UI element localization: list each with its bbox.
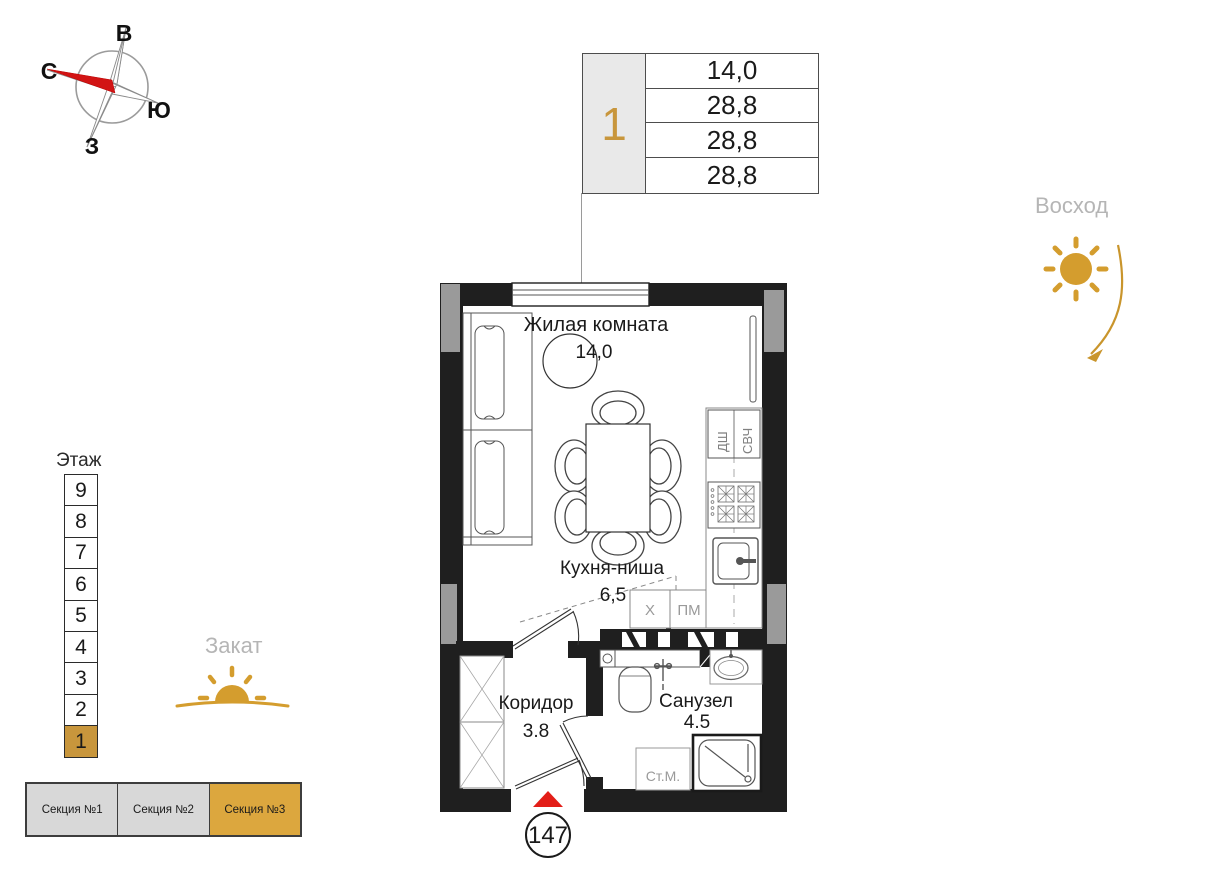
stove [708, 482, 760, 528]
floor-item-8[interactable]: 8 [64, 505, 98, 538]
living-room-area: 14,0 [576, 342, 613, 363]
info-row-total-area: 28,8 [646, 89, 818, 124]
dishwasher-label: ПМ [677, 602, 700, 619]
unit-number: 147 [528, 822, 568, 849]
oven-label: ДШ [715, 431, 730, 452]
shower-tray [693, 735, 761, 791]
unit-number-badge: 147 [526, 813, 570, 857]
floor-item-4[interactable]: 4 [64, 631, 98, 664]
floor-item-3[interactable]: 3 [64, 662, 98, 695]
kitchen-sink [713, 538, 758, 584]
info-row-living-area: 14,0 [646, 54, 818, 89]
info-rows: 14,0 28,8 28,8 28,8 [646, 54, 818, 193]
bed [463, 313, 532, 545]
sunrise-label: Восход [1035, 193, 1108, 219]
floors-label: Этаж [56, 450, 101, 472]
corridor-area: 3.8 [523, 721, 549, 742]
apartment-floor-plan: ДШ СВЧ Х ПМ [430, 275, 810, 875]
sunset-sun-icon [175, 655, 290, 710]
floor-item-9[interactable]: 9 [64, 474, 98, 507]
floor-item-1-active[interactable]: 1 [64, 725, 98, 758]
washer-label: Ст.М. [646, 768, 680, 784]
bathroom-vent [600, 650, 615, 667]
floor-selector: 9 8 7 6 5 4 3 2 1 [64, 474, 98, 758]
compass-label-north: С [41, 58, 58, 84]
apartment-info-table: 1 14,0 28,8 28,8 28,8 [582, 53, 819, 194]
bathroom-label: Санузел [659, 691, 733, 712]
kitchen-label: Кухня-ниша [560, 558, 665, 579]
dining-table [586, 424, 650, 532]
table-leader-line [581, 193, 582, 283]
floor-item-7[interactable]: 7 [64, 537, 98, 570]
section-item-3-active[interactable]: Секция №3 [209, 784, 300, 835]
living-room-label: Жилая комната [524, 314, 669, 336]
unit-type-cell: 1 [583, 54, 646, 193]
tv-panel [750, 316, 756, 402]
microwave-label: СВЧ [740, 428, 755, 454]
wardrobe [460, 656, 504, 788]
floor-plan-page: { "compass": {"east": "В", "north": "С",… [0, 0, 1216, 880]
sunrise-arrow [1075, 240, 1135, 365]
floor-item-5[interactable]: 5 [64, 600, 98, 633]
section-selector: Секция №1 Секция №2 Секция №3 [25, 782, 302, 837]
corridor-label: Коридор [498, 693, 573, 714]
floor-item-2[interactable]: 2 [64, 694, 98, 727]
section-item-1[interactable]: Секция №1 [27, 784, 117, 835]
entrance-door [515, 758, 584, 789]
bathroom-area: 4.5 [684, 712, 710, 733]
toilet [619, 667, 651, 712]
compass-label-west: З [85, 133, 99, 159]
compass-label-south: Ю [147, 97, 171, 123]
info-row-area-3: 28,8 [646, 158, 818, 193]
bathroom-sink [710, 650, 762, 684]
toilet-cistern-shelf [615, 650, 700, 667]
window [512, 283, 649, 306]
kitchen-area: 6,5 [600, 585, 626, 606]
section-item-2[interactable]: Секция №2 [117, 784, 208, 835]
fridge-dishwasher-counter: Х ПМ [630, 590, 706, 628]
oven-microwave-unit: ДШ СВЧ [708, 410, 760, 458]
compass-rose: В С Ю З [28, 8, 203, 168]
fridge-label: Х [645, 602, 655, 619]
water-tap-icon [654, 659, 672, 690]
compass-label-east: В [116, 20, 133, 46]
bathroom-door [560, 716, 591, 780]
info-row-area-2: 28,8 [646, 123, 818, 158]
floor-item-6[interactable]: 6 [64, 568, 98, 601]
washing-machine: Ст.М. [636, 748, 690, 790]
